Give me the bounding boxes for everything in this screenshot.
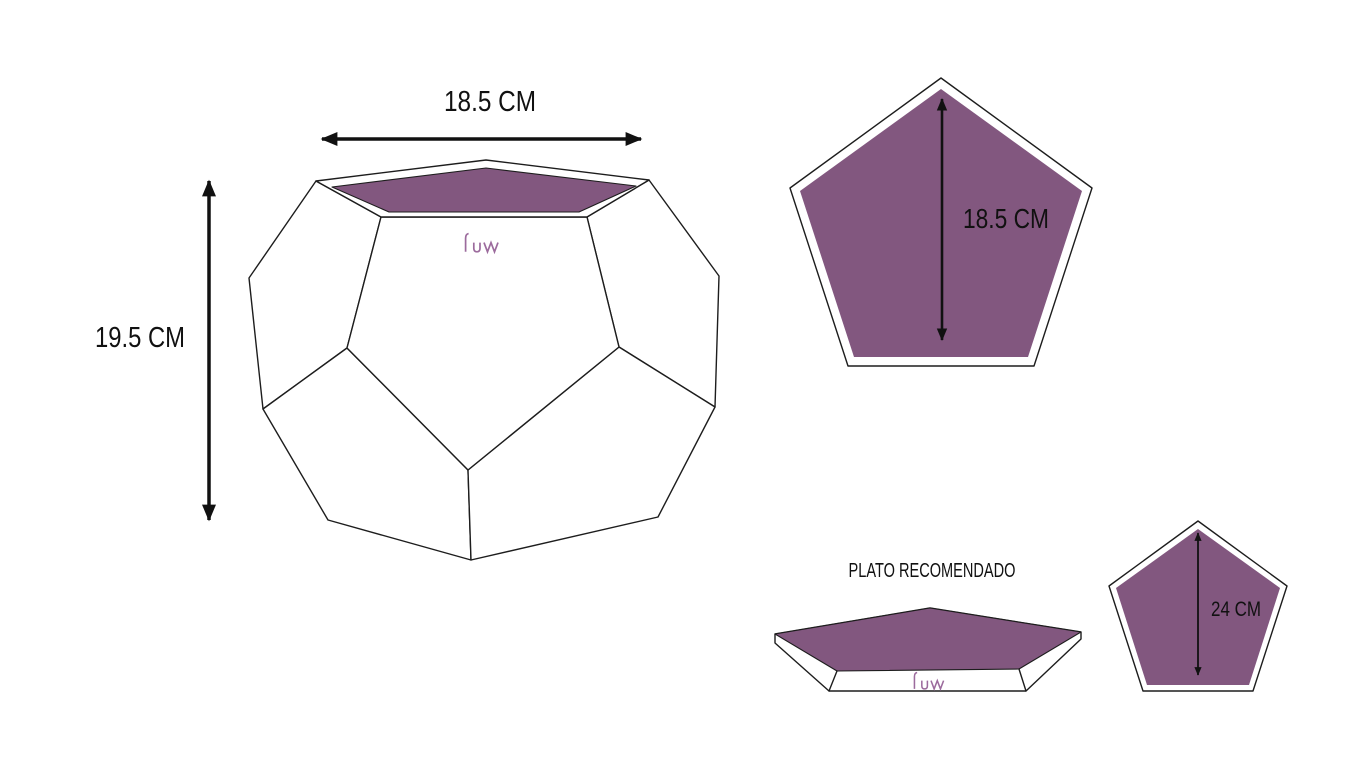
planter-3d-view — [249, 160, 719, 560]
plate-pentagon-top-view: 24 CM — [1109, 521, 1287, 691]
illustration-svg: 18.5 CM 19.5 CM 18.5 CM PLATO RECOMENDAD… — [0, 0, 1366, 768]
plate-diameter-label: 24 CM — [1211, 598, 1261, 621]
planter-height-dimension: 19.5 CM — [95, 181, 209, 520]
planter-height-label: 19.5 CM — [95, 322, 185, 354]
plate-section-title: PLATO RECOMENDADO — [849, 560, 1016, 582]
top-view-diameter-label: 18.5 CM — [963, 203, 1049, 234]
product-dimensions-illustration: 18.5 CM 19.5 CM 18.5 CM PLATO RECOMENDAD… — [0, 0, 1366, 768]
planter-width-dimension: 18.5 CM — [322, 86, 641, 139]
planter-width-label: 18.5 CM — [444, 86, 536, 118]
pentagon-top-view: 18.5 CM — [790, 78, 1092, 366]
recommended-plate-section: PLATO RECOMENDADO 24 CM — [775, 521, 1287, 691]
plate-3d-view — [775, 608, 1081, 691]
